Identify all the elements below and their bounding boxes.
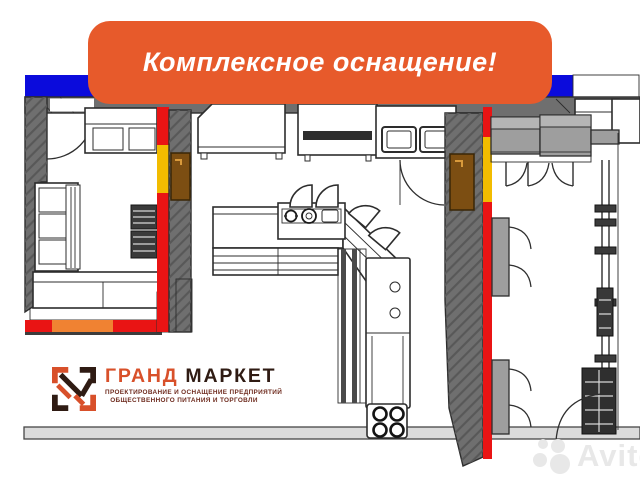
avito-watermark: Avito	[528, 436, 640, 476]
left-passage-door	[171, 153, 190, 200]
logo-tagline-line2: ОБЩЕСТВЕННОГО ПИТАНИЯ И ТОРГОВЛИ	[105, 397, 263, 405]
ad-image: Комплексное оснащение! ГРАНДМАРКЕТ ПРОЕК…	[0, 0, 640, 479]
watermark-text: Avito	[577, 438, 640, 474]
grand-market-logo-icon	[52, 366, 96, 412]
door-swing-right	[400, 160, 444, 205]
cabinet-door-swings	[506, 162, 573, 186]
logo-title: ГРАНДМАРКЕТ	[105, 366, 263, 386]
left-accent-wall	[157, 107, 169, 332]
avito-logo-icon	[528, 436, 574, 476]
drawer-unit	[298, 104, 377, 161]
logo-text: ГРАНДМАРКЕТ ПРОЕКТИРОВАНИЕ И ОСНАЩЕНИЕ П…	[105, 366, 263, 404]
kitchen-room	[198, 104, 456, 281]
left-top-counter	[85, 108, 157, 153]
right-passage-door	[450, 154, 474, 210]
sink-station	[376, 106, 456, 158]
logo-name-primary: ГРАНД	[105, 365, 178, 387]
right-accent-wall	[445, 107, 492, 466]
left-bottom-counter	[33, 272, 158, 308]
right-room	[491, 99, 640, 441]
prep-counter	[198, 104, 285, 159]
left-wall-units	[492, 218, 531, 434]
logo-tagline-line1: ПРОЕКТИРОВАНИЕ И ОСНАЩЕНИЕ ПРЕДПРИЯТИЙ	[105, 389, 263, 397]
logo-name-secondary: МАРКЕТ	[185, 365, 276, 387]
left-room	[25, 97, 176, 335]
promo-banner: Комплексное оснащение!	[88, 21, 552, 104]
cooktop-station	[278, 203, 345, 239]
left-passage-wall	[169, 110, 192, 332]
wall-racks	[131, 205, 157, 258]
storage-shelving	[35, 183, 80, 271]
tall-cabinet	[366, 258, 410, 408]
company-logo: ГРАНДМАРКЕТ ПРОЕКТИРОВАНИЕ И ОСНАЩЕНИЕ П…	[52, 366, 263, 412]
banner-text: Комплексное оснащение!	[143, 47, 497, 78]
range-stove	[367, 404, 407, 438]
